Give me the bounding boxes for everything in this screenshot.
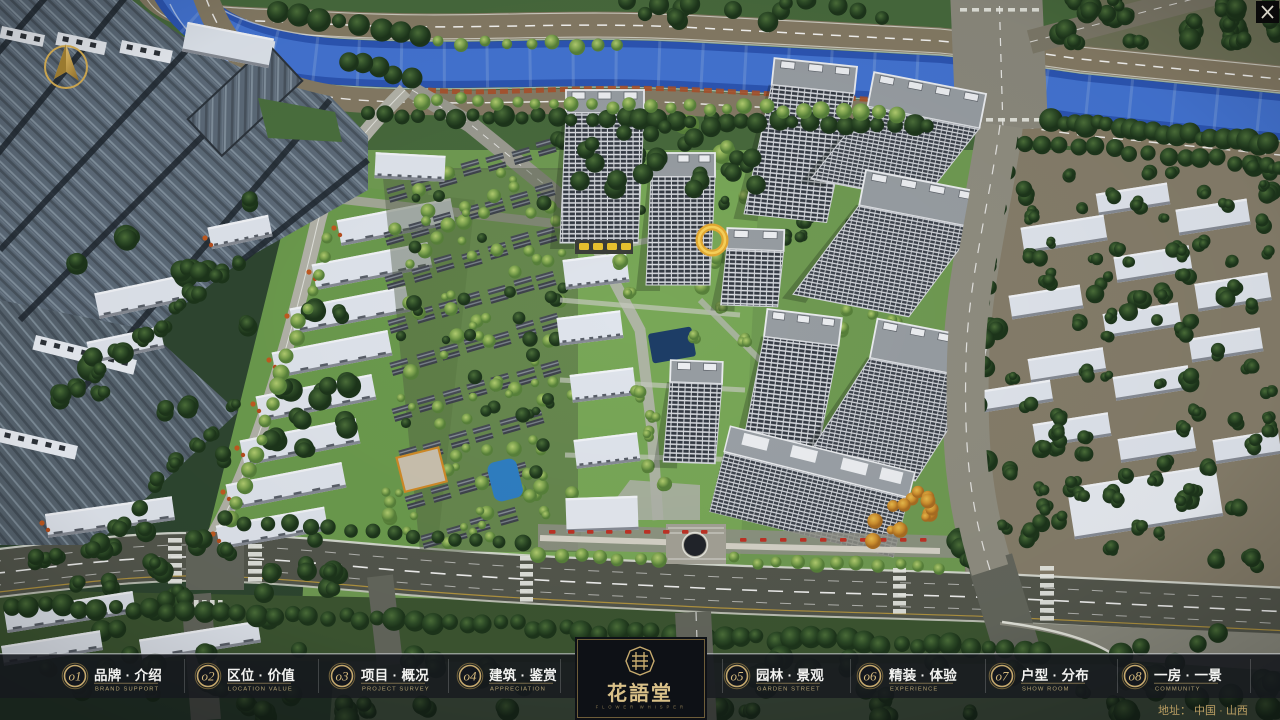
- svg-text:o8: o8: [1129, 669, 1143, 684]
- svg-text:o3: o3: [336, 669, 350, 684]
- svg-text:F L O W E R W H I S P E R: F L O W E R W H I S P E R: [596, 705, 685, 710]
- svg-text:o5: o5: [731, 669, 745, 684]
- svg-text:LOCATION VALUE: LOCATION VALUE: [228, 687, 293, 693]
- svg-text:COMMUNITY: COMMUNITY: [1155, 687, 1201, 693]
- svg-text:区位 · 价值: 区位 · 价值: [227, 667, 295, 683]
- svg-text:SHOW ROOM: SHOW ROOM: [1022, 687, 1070, 693]
- svg-text:花語堂: 花語堂: [607, 681, 673, 705]
- svg-text:品牌 · 介绍: 品牌 · 介绍: [94, 667, 162, 683]
- svg-text:PROJECT SURVEY: PROJECT SURVEY: [362, 687, 430, 693]
- svg-text:o6: o6: [864, 669, 878, 684]
- svg-text:户型 · 分布: 户型 · 分布: [1021, 667, 1089, 683]
- svg-text:GARDEN STREET: GARDEN STREET: [757, 687, 821, 693]
- svg-text:地址： 中国 · 山西: 地址： 中国 · 山西: [1158, 703, 1248, 717]
- svg-text:EXPERIENCE: EXPERIENCE: [890, 687, 938, 693]
- svg-text:精装 · 体验: 精装 · 体验: [889, 667, 957, 683]
- svg-text:o1: o1: [69, 669, 82, 684]
- svg-text:o2: o2: [202, 669, 216, 684]
- svg-text:一房 · 一景: 一房 · 一景: [1154, 667, 1222, 683]
- svg-text:o4: o4: [464, 669, 478, 684]
- svg-text:APPRECIATION: APPRECIATION: [490, 687, 546, 693]
- svg-text:项目 · 概况: 项目 · 概况: [361, 667, 429, 683]
- svg-text:园林 · 景观: 园林 · 景观: [756, 667, 824, 683]
- svg-text:BRAND SUPPORT: BRAND SUPPORT: [95, 687, 159, 693]
- svg-text:建筑 · 鉴赏: 建筑 · 鉴赏: [488, 667, 557, 683]
- svg-text:o7: o7: [996, 669, 1010, 684]
